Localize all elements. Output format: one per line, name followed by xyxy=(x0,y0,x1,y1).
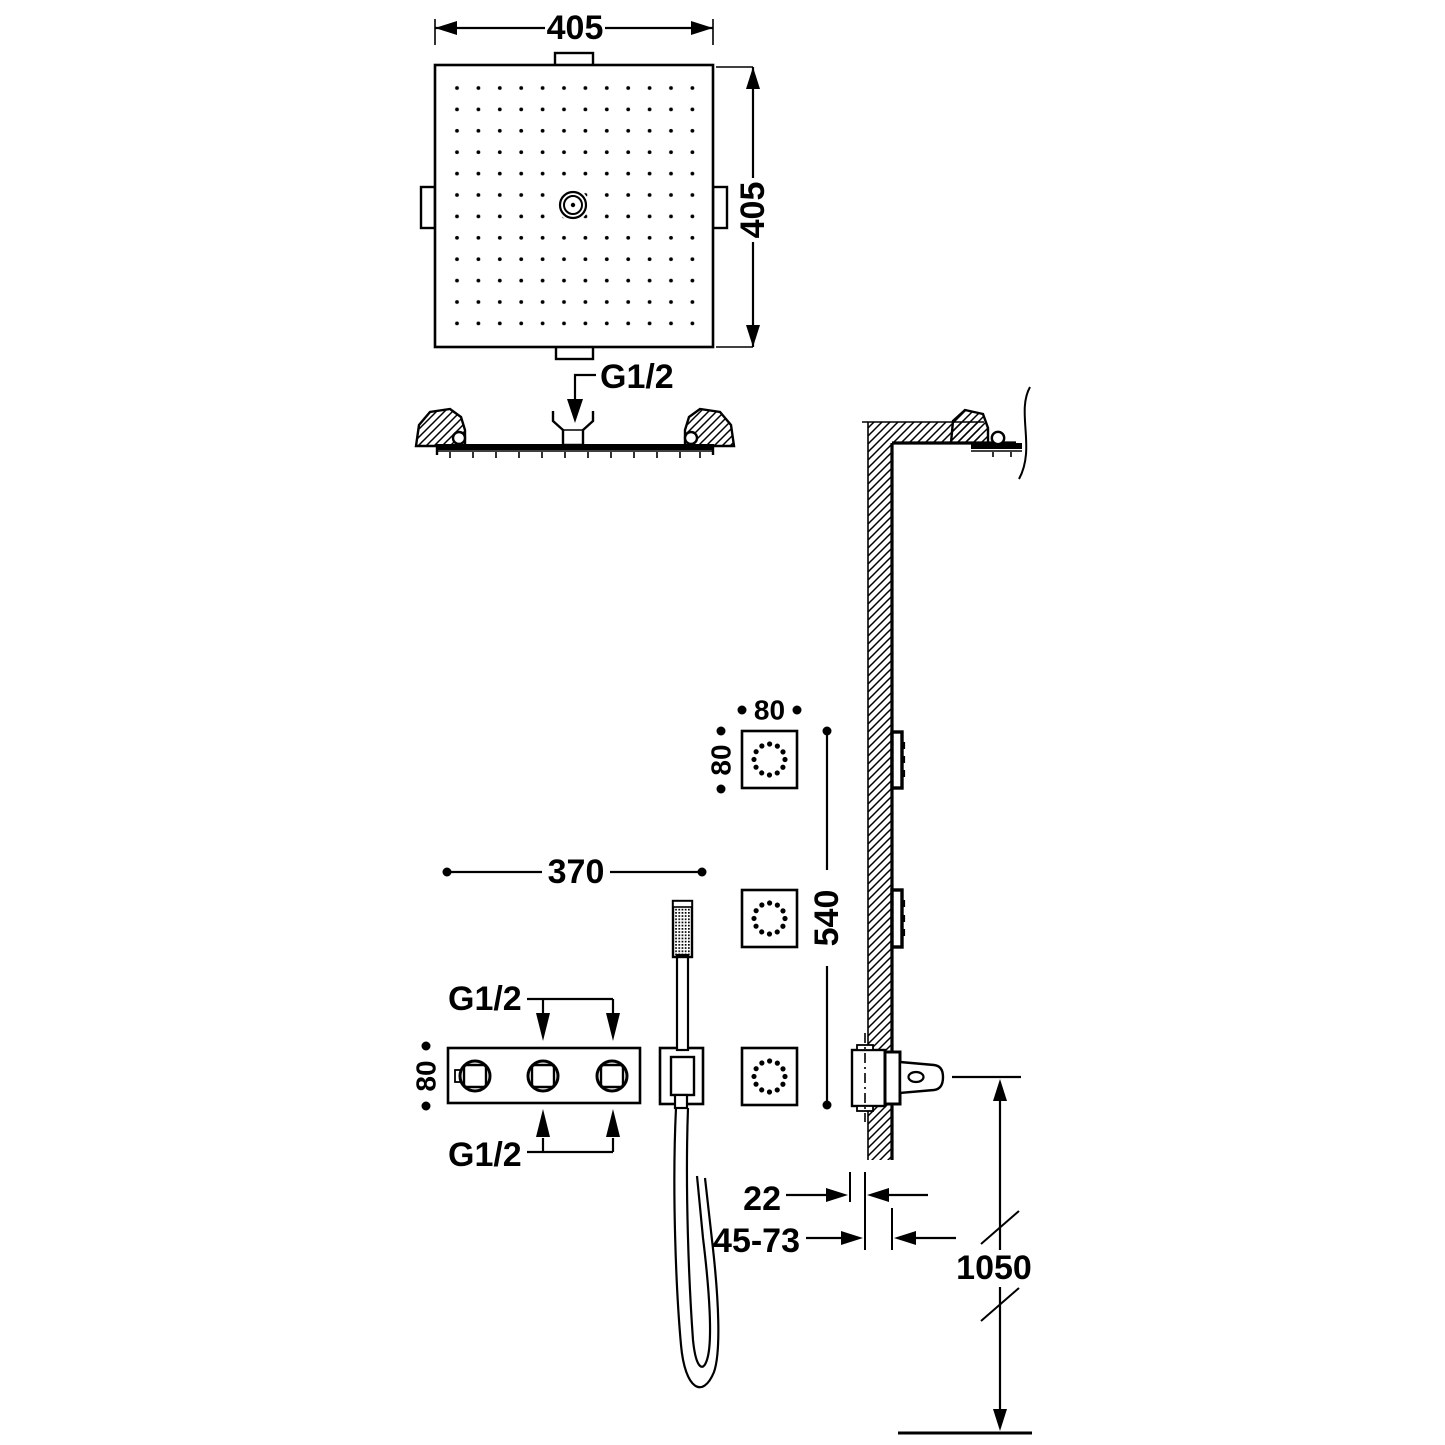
arrowhead-right xyxy=(841,1231,863,1245)
valve-flange xyxy=(885,1052,900,1104)
jet-plate xyxy=(742,1048,797,1105)
dim-dot xyxy=(793,706,802,715)
dim-jet-width-label: 80 xyxy=(754,695,785,726)
arrowhead-down-2 xyxy=(606,1013,620,1041)
dim-jet-height: 80 xyxy=(706,727,737,794)
mixer-inlet-bottom-callout: G1/2 xyxy=(448,1109,620,1174)
mixer-front-view xyxy=(448,1048,640,1103)
jet-plate xyxy=(742,890,797,947)
head-plate-edge-section xyxy=(971,443,1022,449)
mixer-knob-3 xyxy=(597,1061,627,1091)
dim-dot xyxy=(717,785,726,794)
leader-stems xyxy=(543,1138,613,1152)
clamp-screw-left xyxy=(453,432,465,444)
rain-head-front-view xyxy=(421,53,727,359)
wall-section xyxy=(862,387,1030,1160)
mixer-inlet-top-callout: G1/2 xyxy=(448,980,620,1041)
dim-jet-width: 80 xyxy=(738,695,802,726)
arrowhead-left xyxy=(867,1188,889,1202)
handle-stub xyxy=(675,1095,687,1108)
hose-inner xyxy=(687,1108,710,1367)
mixer-inlet-top-label: G1/2 xyxy=(448,980,522,1018)
dim-mixer-width: 370 xyxy=(443,853,707,891)
arrowhead-up-1 xyxy=(536,1109,550,1137)
dim-dot xyxy=(738,706,747,715)
body-jet-3 xyxy=(742,1048,797,1105)
head-tab-right xyxy=(713,187,727,228)
arrowhead-down xyxy=(993,1409,1007,1431)
leader-stems xyxy=(543,999,613,1013)
dim-valve-height-label: 1050 xyxy=(956,1249,1032,1287)
dim-trim-depth-label: 22 xyxy=(743,1180,781,1218)
arrowhead-up-2 xyxy=(606,1109,620,1137)
arrowhead-up xyxy=(993,1079,1007,1101)
arrowhead-left xyxy=(894,1231,916,1245)
valve-side-view xyxy=(852,1033,943,1122)
valve-handle-slot xyxy=(909,1072,924,1082)
leader-arrowhead xyxy=(567,399,583,423)
dim-dot xyxy=(717,727,726,736)
hand-shower-cap xyxy=(673,901,692,907)
dim-dot xyxy=(422,1042,431,1051)
dim-dot xyxy=(422,1102,431,1111)
leader-line xyxy=(575,375,596,399)
arrowhead-left xyxy=(435,21,457,35)
arrowhead-right xyxy=(691,21,713,35)
head-center-rosette xyxy=(557,189,589,221)
dim-head-width-label: 405 xyxy=(547,9,604,47)
head-inlet-callout: G1/2 xyxy=(567,358,674,423)
technical-drawing-page: 405 405 G1/2 xyxy=(0,0,1445,1445)
clamp-screw xyxy=(992,432,1004,444)
hand-shower-handle xyxy=(677,955,688,1050)
clamp-screw-right xyxy=(685,432,697,444)
jet-side-body xyxy=(892,732,902,788)
head-plate-edge xyxy=(437,444,713,450)
nozzle-ticks xyxy=(450,452,700,458)
head-tab-left xyxy=(421,187,435,228)
dim-jet-spacing: 540 xyxy=(808,727,846,1110)
body-jet-1 xyxy=(742,731,797,788)
nozzle-ticks-section xyxy=(993,452,1011,457)
arrowhead-down-1 xyxy=(536,1013,550,1041)
dim-head-height-label: 405 xyxy=(734,182,772,239)
mixer-knob-2 xyxy=(528,1061,558,1091)
dim-mixer-height-label: 80 xyxy=(411,1060,442,1091)
dim-mixer-height: 80 xyxy=(411,1042,442,1111)
head-inlet-label: G1/2 xyxy=(600,358,674,396)
hand-shower xyxy=(660,901,718,1387)
dim-jet-height-label: 80 xyxy=(706,744,737,775)
side-jet-2 xyxy=(892,890,904,947)
arrowhead-up xyxy=(746,67,760,89)
jet-plate xyxy=(742,731,797,788)
hose-outer xyxy=(674,1108,718,1387)
dim-recess-depth-label: 45-73 xyxy=(713,1222,800,1260)
dim-valve-height: 1050 xyxy=(898,1077,1032,1433)
holder-block xyxy=(671,1057,694,1095)
dim-head-width: 405 xyxy=(435,9,713,47)
break-line xyxy=(1019,387,1030,479)
valve-body xyxy=(852,1050,885,1106)
mixer-inlet-bottom-label: G1/2 xyxy=(448,1136,522,1174)
arrowhead-right xyxy=(826,1188,848,1202)
side-jet-1 xyxy=(892,732,904,788)
body-jet-2 xyxy=(742,890,797,947)
arrowhead-down xyxy=(746,325,760,347)
dim-jet-spacing-label: 540 xyxy=(808,890,846,947)
shower-installation-drawing: 405 405 G1/2 xyxy=(0,0,1445,1445)
jet-side-body xyxy=(892,890,902,947)
ceiling-clamp-section xyxy=(951,410,988,443)
hand-shower-head xyxy=(673,901,692,957)
dim-mixer-width-label: 370 xyxy=(548,853,605,891)
